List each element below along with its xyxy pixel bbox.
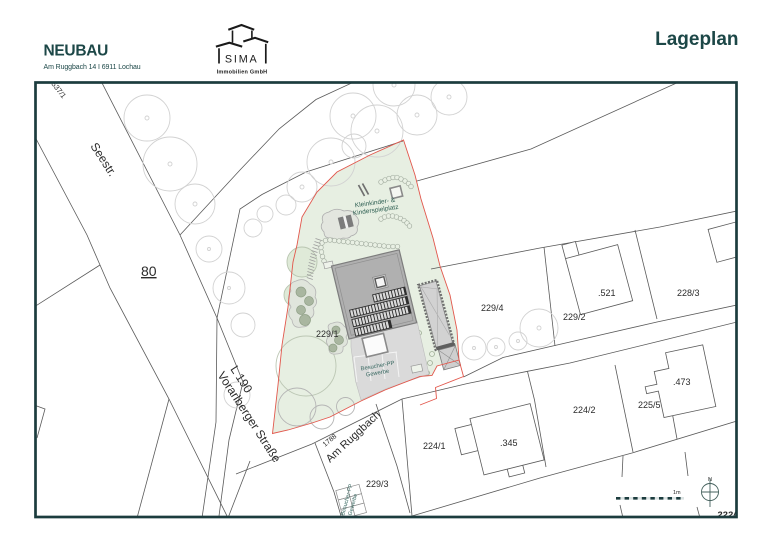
- svg-text:NEUBAU: NEUBAU: [44, 43, 109, 60]
- svg-text:Am Ruggbach 14 I 6911 Lochau: Am Ruggbach 14 I 6911 Lochau: [44, 64, 141, 71]
- svg-text:229/1: 229/1: [316, 329, 339, 339]
- svg-text:229/4: 229/4: [481, 303, 504, 313]
- svg-text:N: N: [708, 477, 712, 483]
- svg-text:.521: .521: [598, 288, 616, 298]
- svg-text:224/1: 224/1: [423, 441, 446, 451]
- svg-text:225/5: 225/5: [638, 400, 661, 410]
- svg-text:229/2: 229/2: [563, 312, 586, 322]
- svg-text:229/3: 229/3: [366, 479, 389, 489]
- svg-text:1m: 1m: [673, 490, 681, 496]
- svg-text:.473: .473: [673, 377, 691, 387]
- svg-text:80: 80: [141, 263, 157, 279]
- svg-text:228/3: 228/3: [677, 288, 700, 298]
- svg-text:SIMA: SIMA: [225, 53, 259, 65]
- svg-text:.345: .345: [500, 438, 518, 448]
- svg-text:Lageplan: Lageplan: [655, 29, 738, 50]
- svg-text:224/2: 224/2: [573, 405, 596, 415]
- svg-text:Immobilien GmbH: Immobilien GmbH: [217, 70, 268, 76]
